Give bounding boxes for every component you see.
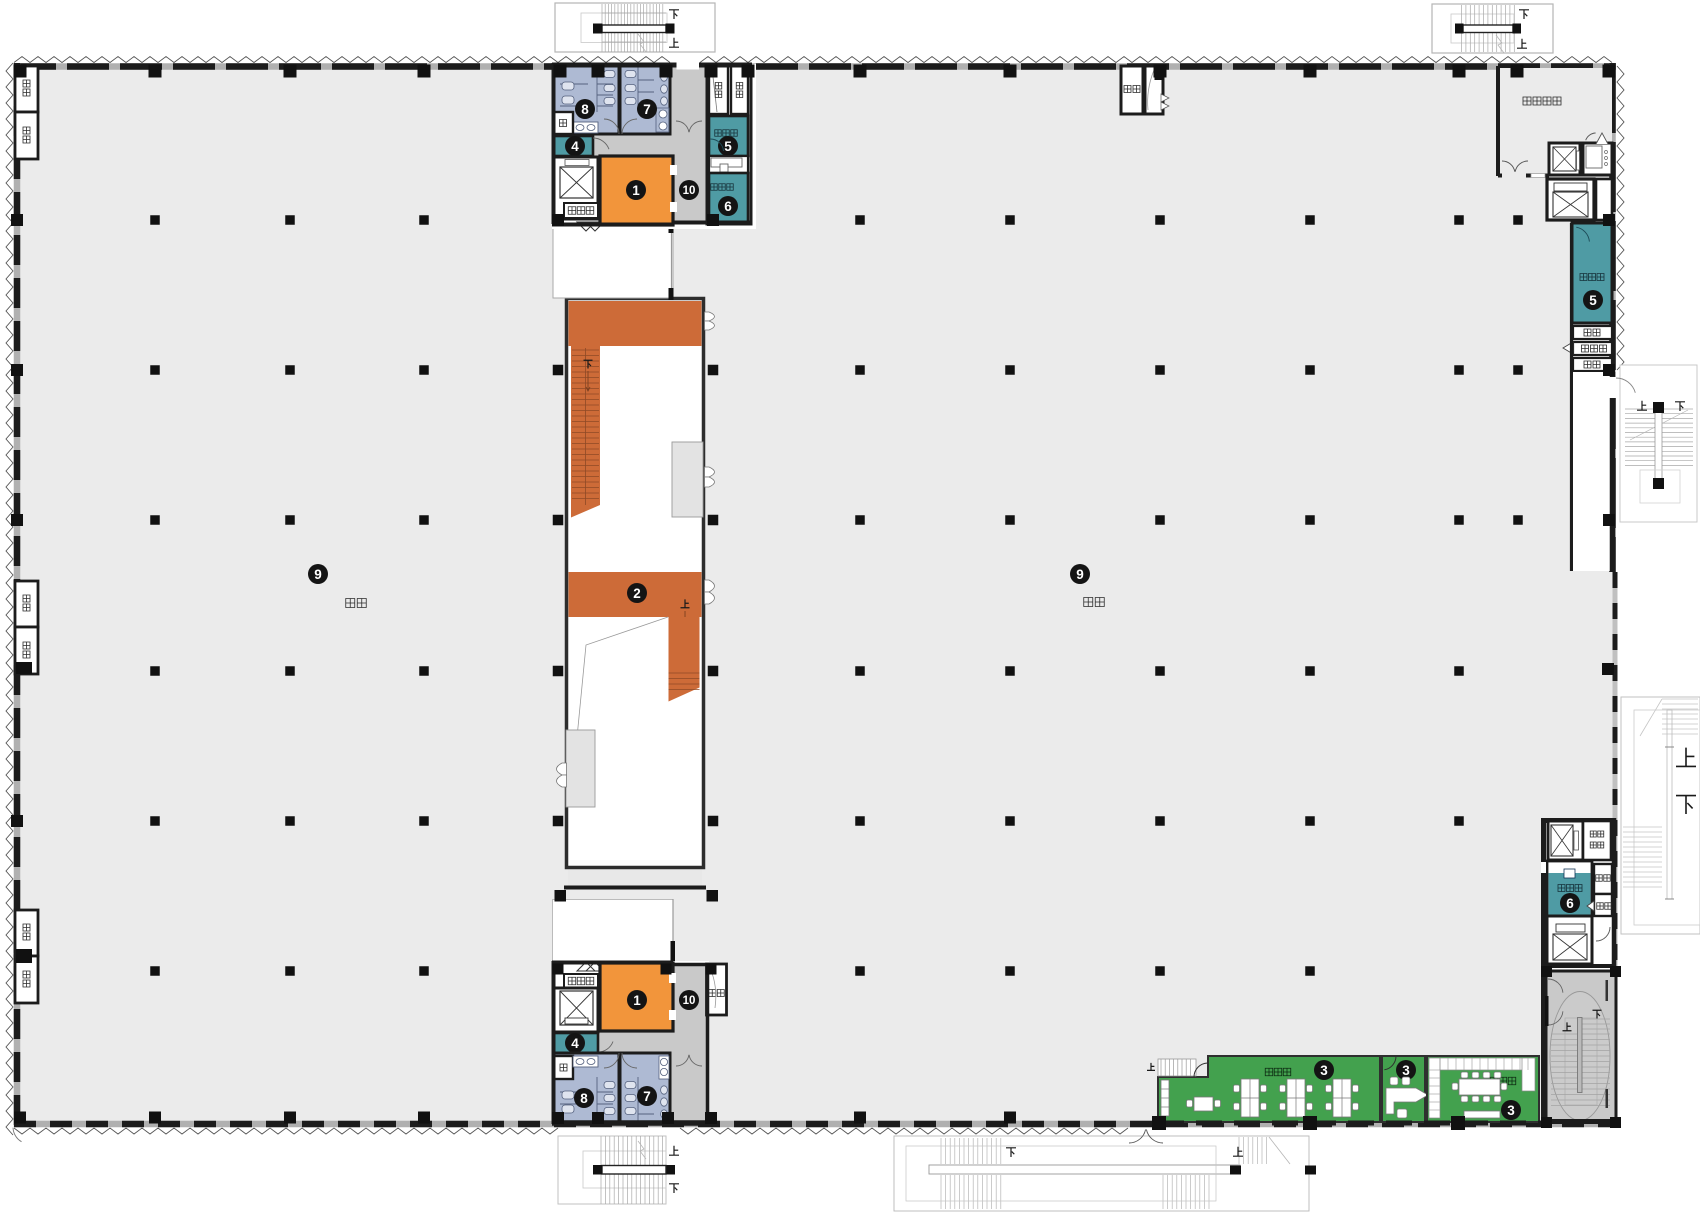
svg-text:1: 1	[632, 183, 640, 198]
svg-text:3: 3	[1507, 1103, 1515, 1118]
svg-text:3: 3	[1320, 1063, 1328, 1078]
svg-text:7: 7	[643, 102, 651, 117]
svg-text:2: 2	[633, 586, 641, 601]
svg-text:10: 10	[683, 995, 696, 1007]
svg-text:1: 1	[633, 993, 641, 1008]
svg-text:5: 5	[1589, 293, 1597, 308]
svg-text:4: 4	[571, 139, 579, 154]
svg-text:6: 6	[724, 199, 732, 214]
svg-text:8: 8	[580, 1091, 588, 1106]
svg-text:8: 8	[581, 102, 589, 117]
svg-text:10: 10	[683, 185, 696, 197]
svg-text:4: 4	[571, 1036, 579, 1051]
svg-text:3: 3	[1402, 1063, 1410, 1078]
svg-text:9: 9	[314, 567, 322, 582]
svg-text:6: 6	[1566, 896, 1574, 911]
svg-text:7: 7	[643, 1089, 651, 1104]
svg-text:5: 5	[724, 139, 732, 154]
svg-text:9: 9	[1076, 567, 1084, 582]
